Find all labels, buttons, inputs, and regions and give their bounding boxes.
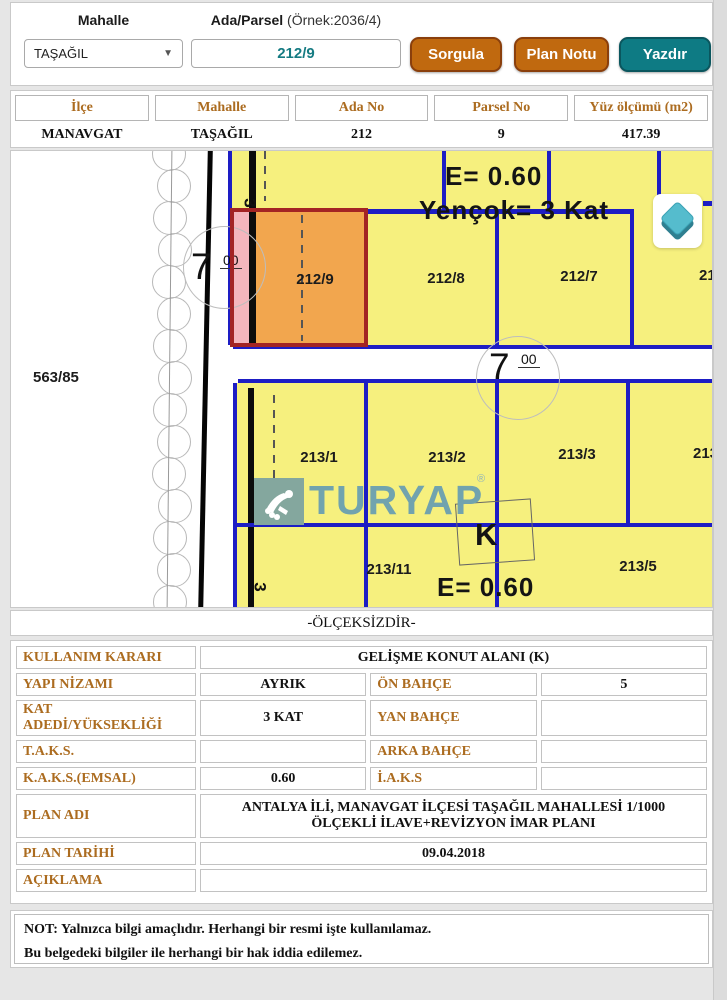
parcel-label-213-1: 213/1	[300, 449, 338, 466]
row-label: YAPI NİZAMI	[16, 673, 196, 696]
mahalle-label: Mahalle	[24, 12, 183, 28]
parcel-label-213-4: 213/4	[693, 445, 713, 462]
col-header-yuzolcumu: Yüz ölçümü (m2)	[574, 95, 708, 121]
map-panel[interactable]: 7 00 7 00 3 3 E= 0.60 Yençok= 3 Kat E= 0…	[10, 150, 713, 608]
row-value: 3 KAT	[200, 700, 366, 736]
table-row: KAT ADEDİ/YÜKSEKLİĞİ 3 KAT YAN BAHÇE	[16, 700, 707, 736]
table-row: KULLANIM KARARI GELİŞME KONUT ALANI (K)	[16, 646, 707, 669]
row-label: ARKA BAHÇE	[370, 740, 536, 763]
zoning-info-panel: KULLANIM KARARI GELİŞME KONUT ALANI (K) …	[10, 640, 713, 904]
plan-notu-button[interactable]: Plan Notu	[514, 37, 609, 72]
disclaimer-panel: NOT: Yalnızca bilgi amaçlıdır. Herhangi …	[10, 910, 713, 968]
parcel-label-213-11: 213/11	[366, 561, 411, 578]
col-header-ada-no: Ada No	[295, 95, 429, 121]
scale-note-text: -ÖLÇEKSİZDİR-	[307, 615, 415, 631]
emsal-annotation-bottom: E= 0.60	[437, 572, 534, 603]
table-row: K.A.K.S.(EMSAL) 0.60 İ.A.K.S	[16, 767, 707, 790]
ada-parsel-label: Ada/Parsel (Örnek:2036/4)	[191, 12, 401, 28]
cadastral-boundary-line	[198, 150, 213, 608]
map-layers-control[interactable]	[653, 194, 702, 248]
row-value	[200, 869, 707, 892]
result-table: İlçe Mahalle Ada No Parsel No Yüz ölçümü…	[10, 90, 713, 148]
registered-mark-icon: ®	[477, 473, 485, 485]
result-header-row: İlçe Mahalle Ada No Parsel No Yüz ölçümü…	[15, 95, 708, 121]
scale-note-bar: -ÖLÇEKSİZDİR-	[10, 610, 713, 636]
parcel-label-563-85: 563/85	[33, 369, 79, 386]
disclaimer-line-1: NOT: Yalnızca bilgi amaçlıdır. Herhangi …	[24, 918, 699, 942]
turyap-watermark: TURYAP	[309, 477, 484, 524]
table-row: YAPI NİZAMI AYRIK ÖN BAHÇE 5	[16, 673, 707, 696]
row-value	[541, 767, 707, 790]
parcel-label-213-2: 213/2	[428, 449, 466, 466]
row-value	[541, 740, 707, 763]
parcel-label-213-5: 213/5	[619, 558, 657, 575]
row-label: KAT ADEDİ/YÜKSEKLİĞİ	[16, 700, 196, 736]
ada-parsel-label-bold: Ada/Parsel	[211, 12, 283, 28]
row-value: ANTALYA İLİ, MANAVGAT İLÇESİ TAŞAĞIL MAH…	[200, 794, 707, 838]
page: Mahalle Ada/Parsel (Örnek:2036/4) TAŞAĞI…	[0, 0, 727, 1000]
mahalle-select[interactable]: TAŞAĞIL ▼	[24, 39, 183, 68]
width-marker: 3	[240, 198, 260, 207]
map-line	[630, 209, 634, 345]
yazdir-button[interactable]: Yazdır	[619, 37, 711, 72]
disclaimer-line-2: Bu belgedeki bilgiler ile herhangi bir h…	[24, 942, 699, 966]
table-row: AÇIKLAMA	[16, 869, 707, 892]
col-header-mahalle: Mahalle	[155, 95, 289, 121]
search-panel: Mahalle Ada/Parsel (Örnek:2036/4) TAŞAĞI…	[10, 2, 713, 86]
parcel-label-213-3: 213/3	[558, 446, 596, 463]
ada-parsel-hint: (Örnek:2036/4)	[287, 12, 381, 28]
table-row: PLAN ADI ANTALYA İLİ, MANAVGAT İLÇESİ TA…	[16, 794, 707, 838]
parcel-label-212-6: 212	[699, 267, 713, 284]
ada-parsel-input[interactable]	[191, 39, 401, 68]
result-value-row: MANAVGAT TAŞAĞIL 212 9 417.39	[15, 121, 708, 147]
value-ilce: MANAVGAT	[15, 121, 149, 147]
value-parsel-no: 9	[434, 121, 568, 147]
disclaimer-box: NOT: Yalnızca bilgi amaçlıdır. Herhangi …	[14, 914, 709, 964]
parcel-label-212-8: 212/8	[427, 270, 465, 287]
parcel-label-212-9: 212/9	[296, 271, 334, 288]
row-value: 0.60	[200, 767, 366, 790]
row-label: T.A.K.S.	[16, 740, 196, 763]
width-marker: 3	[250, 582, 270, 591]
road-number: 7	[191, 246, 212, 288]
row-label: PLAN ADI	[16, 794, 196, 838]
table-row: PLAN TARİHİ 09.04.2018	[16, 842, 707, 865]
turyap-logo-mark	[254, 478, 304, 525]
scrollbar[interactable]	[713, 0, 727, 1000]
emsal-annotation-top: E= 0.60	[445, 161, 542, 192]
map-line	[495, 209, 499, 345]
map-line	[626, 383, 630, 527]
value-ada-no: 212	[295, 121, 429, 147]
row-label: K.A.K.S.(EMSAL)	[16, 767, 196, 790]
row-value	[541, 700, 707, 736]
handshake-icon	[260, 484, 298, 520]
row-value	[200, 740, 366, 763]
value-mahalle: TAŞAĞIL	[155, 121, 289, 147]
chevron-down-icon: ▼	[163, 40, 173, 67]
row-label: ÖN BAHÇE	[370, 673, 536, 696]
row-label: PLAN TARİHİ	[16, 842, 196, 865]
mahalle-select-value: TAŞAĞIL	[34, 46, 88, 61]
col-header-parsel-no: Parsel No	[434, 95, 568, 121]
parcel-label-212-7: 212/7	[560, 268, 598, 285]
col-header-ilce: İlçe	[15, 95, 149, 121]
row-label: YAN BAHÇE	[370, 700, 536, 736]
map-line	[233, 383, 237, 608]
dash-line	[264, 151, 266, 201]
table-row: T.A.K.S. ARKA BAHÇE	[16, 740, 707, 763]
map-line	[703, 201, 713, 206]
row-label: İ.A.K.S	[370, 767, 536, 790]
value-yuzolcumu: 417.39	[574, 121, 708, 147]
layers-icon	[660, 201, 695, 236]
row-label: AÇIKLAMA	[16, 869, 196, 892]
row-label: KULLANIM KARARI	[16, 646, 196, 669]
row-value: 09.04.2018	[200, 842, 707, 865]
road-number: 7	[489, 346, 510, 388]
row-value: GELİŞME KONUT ALANI (K)	[200, 646, 707, 669]
yencok-annotation: Yençok= 3 Kat	[419, 195, 609, 226]
sorgula-button[interactable]: Sorgula	[410, 37, 502, 72]
road-number-sub: 00	[518, 351, 540, 368]
zoning-info-table: KULLANIM KARARI GELİŞME KONUT ALANI (K) …	[12, 642, 711, 896]
row-value: 5	[541, 673, 707, 696]
row-value: AYRIK	[200, 673, 366, 696]
